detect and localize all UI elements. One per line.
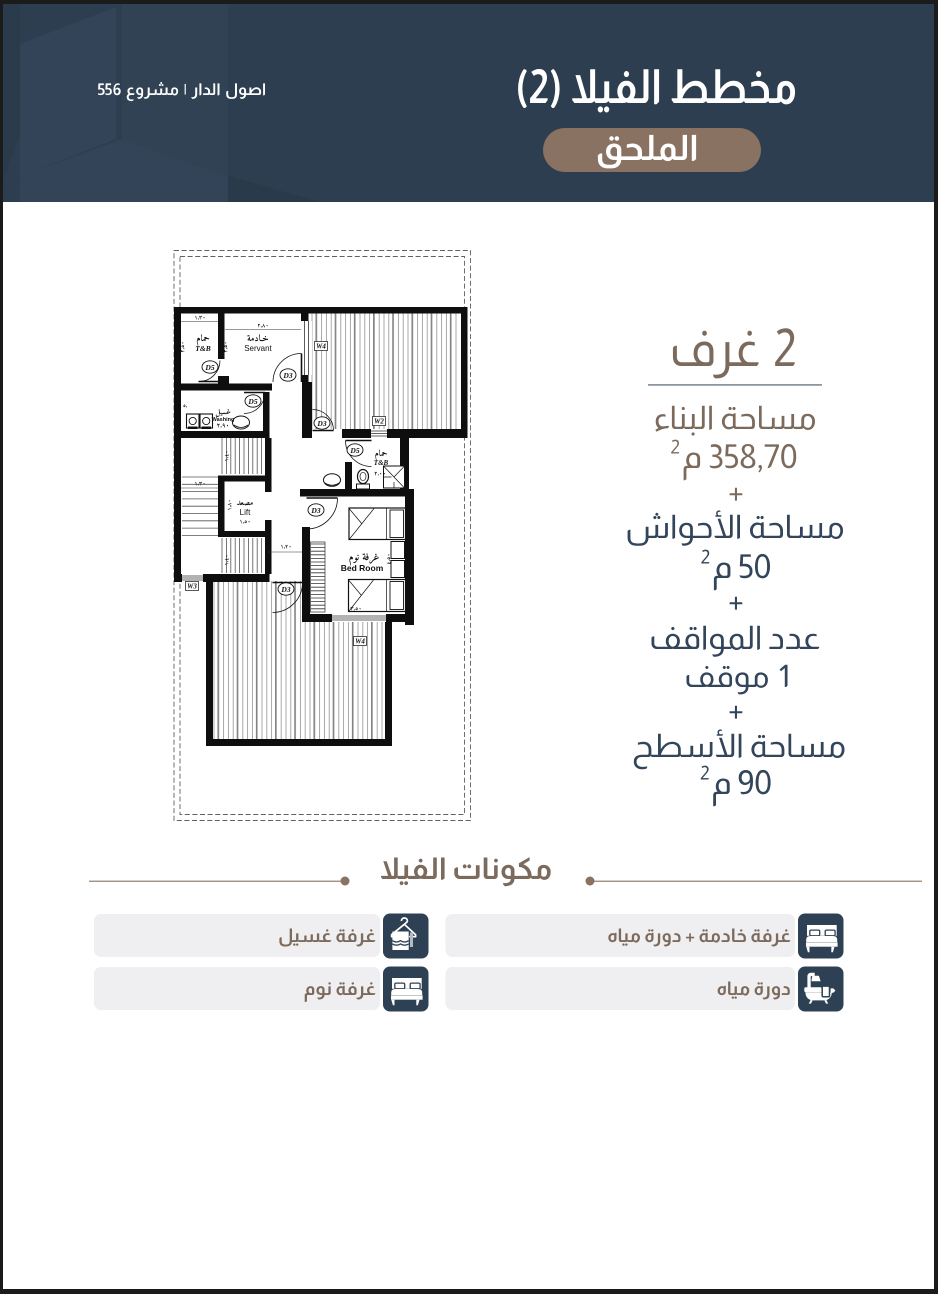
svg-text:T&B: T&B — [374, 459, 389, 467]
svg-text:Bed Room: Bed Room — [341, 563, 384, 573]
svg-text:D5: D5 — [247, 397, 257, 406]
svg-text:D3: D3 — [280, 585, 290, 594]
svg-text:D3: D3 — [316, 419, 326, 428]
svg-text:W4: W4 — [355, 638, 365, 646]
svg-text:W4: W4 — [316, 343, 326, 351]
svg-text:D5: D5 — [204, 363, 214, 372]
svg-text:Lift: Lift — [240, 508, 251, 517]
svg-text:T&B: T&B — [195, 344, 210, 353]
svg-text:W3: W3 — [187, 583, 197, 591]
svg-text:Washing: Washing — [212, 417, 235, 423]
svg-text:Servant: Servant — [244, 344, 272, 353]
svg-text:D3: D3 — [310, 506, 320, 515]
svg-text:D3: D3 — [282, 371, 292, 380]
svg-text:W2: W2 — [374, 418, 384, 426]
svg-text:D5: D5 — [349, 446, 359, 455]
